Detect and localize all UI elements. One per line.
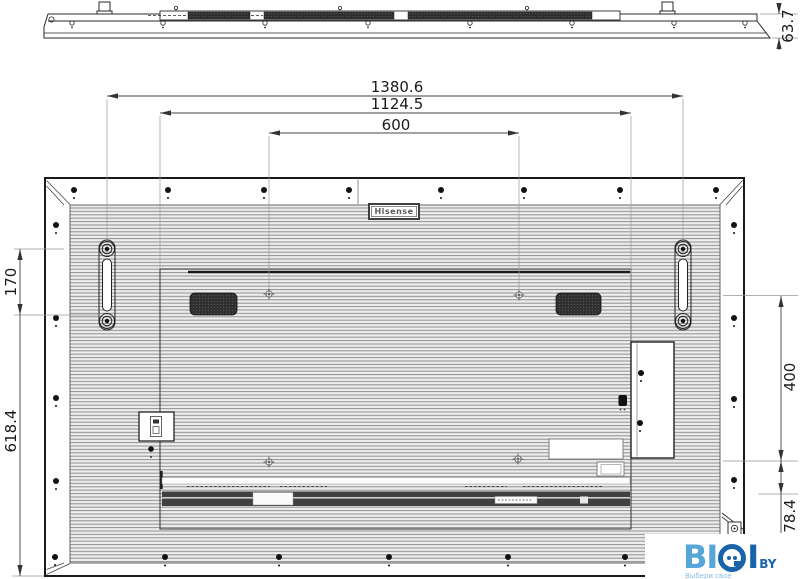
tv-dimension-drawing: 1380.6 1124.5 600 63.7 170 618.4 400 78.… — [0, 0, 800, 579]
logo-text-light: BI — [683, 540, 717, 574]
port-strip — [162, 478, 630, 507]
dim-label-1124-5: 1124.5 — [337, 96, 457, 112]
side-connector — [619, 395, 628, 406]
brand-plate-inner: Hisense — [371, 206, 417, 217]
dim-label-400: 400 — [782, 347, 798, 407]
rear-view — [45, 178, 744, 576]
brand-plate: Hisense — [368, 203, 420, 220]
top-profile-view — [44, 2, 770, 38]
logo-smiley-g-icon — [718, 544, 746, 572]
vent-grille-right — [556, 293, 601, 315]
logo-suffix: BY — [759, 557, 776, 571]
store-logo: BI I BY — [683, 536, 776, 574]
dim-label-618-4: 618.4 — [3, 401, 19, 461]
vent-grille-left — [190, 293, 237, 315]
speaker-strip — [148, 11, 620, 20]
dim-label-63-7: 63.7 — [780, 0, 796, 56]
smiley-eye-right — [733, 556, 737, 560]
g-crossbar — [734, 561, 742, 566]
dim-label-170: 170 — [3, 252, 19, 312]
logo-text-i: I — [747, 540, 758, 574]
dim-label-600: 600 — [336, 117, 456, 133]
brand-label: Hisense — [374, 208, 413, 216]
dim-label-1380-6: 1380.6 — [337, 79, 457, 95]
store-watermark: BI I BY Выбери своё — [645, 534, 800, 579]
logo-tagline: Выбери своё — [685, 572, 732, 579]
smiley-eye-left — [727, 556, 731, 560]
